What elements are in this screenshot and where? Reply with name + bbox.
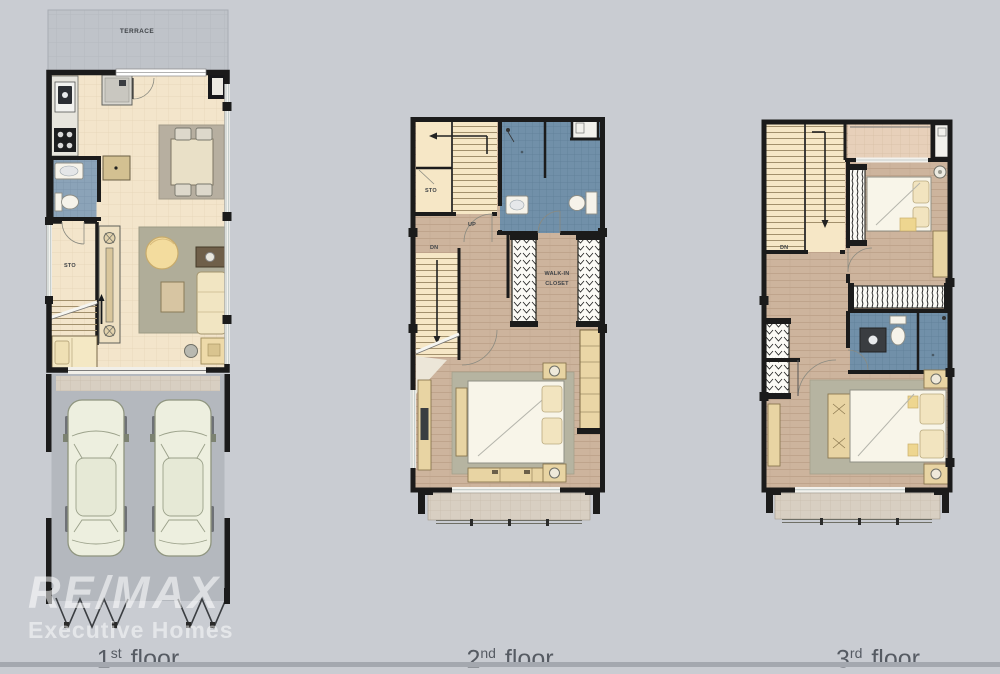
- floor2-caption-word: floor: [505, 645, 554, 673]
- floor1-caption: 1stfloor: [97, 645, 179, 674]
- console: [768, 404, 780, 466]
- round-pouf: [146, 237, 178, 269]
- bathroom-3f: [848, 311, 950, 372]
- toilet: [891, 327, 905, 345]
- sofa: [197, 272, 226, 334]
- tall-cabinet: [580, 330, 600, 430]
- balcony-3f: [766, 489, 949, 525]
- bench: [828, 394, 850, 458]
- floor3-caption-num: 3: [836, 645, 850, 673]
- car-2: [150, 400, 216, 556]
- closet-strip-3f: [848, 283, 950, 311]
- bottom-edge-strip: [0, 662, 1000, 667]
- terrace-label: TERRACE: [120, 28, 154, 35]
- balcony-top-3f: [845, 124, 950, 163]
- bathroom-1f: [52, 158, 102, 219]
- sto-label-2f: STO: [425, 188, 437, 194]
- floor3-caption: 3rdfloor: [836, 645, 920, 674]
- stairs-3f: [764, 124, 845, 252]
- stove: [54, 128, 76, 152]
- floorplans-graphic: TERRACE: [0, 0, 1000, 667]
- dining-table: [171, 139, 213, 185]
- toilet: [569, 196, 585, 211]
- window-left-2f: [411, 390, 417, 468]
- window-left: [47, 224, 53, 298]
- garage: [46, 374, 230, 628]
- bathroom-2f: [497, 119, 600, 233]
- floor3-plan: DN: [760, 122, 955, 525]
- walkin-label-2: CLOSET: [545, 281, 569, 287]
- dn-label-3f: DN: [780, 245, 788, 251]
- gate-right: [178, 599, 226, 627]
- terrace-area: [48, 10, 228, 71]
- wardrobe: [849, 167, 865, 243]
- floor1-caption-word: floor: [131, 645, 180, 673]
- floor2-caption: 2ndfloor: [466, 645, 553, 674]
- bench: [933, 231, 948, 277]
- floor2-caption-sup: nd: [480, 645, 496, 661]
- floor2-caption-num: 2: [466, 645, 480, 673]
- walkin-label-1: WALK-IN: [545, 271, 570, 277]
- desk-chair: [185, 345, 198, 358]
- floor3-caption-sup: rd: [850, 645, 862, 661]
- sto-label-1f: STO: [64, 263, 76, 269]
- floor1-caption-sup: st: [111, 645, 122, 661]
- dn-label-2f: DN: [430, 245, 438, 251]
- car-1: [63, 400, 129, 556]
- coffee-table: [161, 282, 184, 312]
- floor2-plan: STO UP DN: [409, 119, 608, 526]
- up-label-2f: UP: [468, 222, 476, 228]
- toilet: [62, 195, 79, 209]
- floor1-plan: TERRACE: [45, 10, 232, 628]
- bench: [456, 388, 467, 456]
- floor3-caption-word: floor: [871, 645, 920, 673]
- balcony-2f: [418, 489, 600, 526]
- floor1-caption-num: 1: [97, 645, 111, 673]
